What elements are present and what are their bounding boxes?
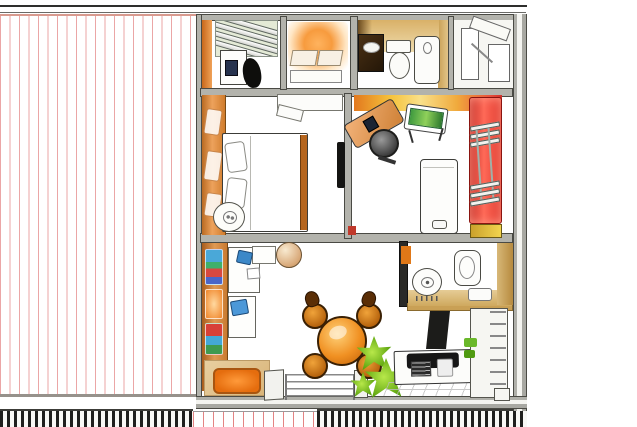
upper-bath-toilet-seat — [389, 52, 410, 79]
vanity-basin — [363, 42, 380, 53]
counter-sink — [437, 359, 453, 377]
tub-inner-oval — [459, 256, 475, 279]
bottom-tick-band-left — [0, 409, 193, 427]
floor-plan-canvas — [0, 0, 637, 427]
cabinet-handle — [432, 220, 447, 229]
wall-closet-bednook — [280, 16, 287, 90]
wall-bedroom-office — [344, 93, 352, 239]
top-border-line-1 — [0, 5, 527, 7]
office-yellow-step — [470, 224, 502, 238]
lower-bath-right-wall — [497, 243, 513, 305]
lower-bath-orange-accent — [401, 246, 411, 264]
upper-bath-shower — [414, 36, 440, 84]
kitchen-dark-column — [426, 311, 450, 349]
living-counter-small — [252, 246, 276, 264]
wall-outer-right — [513, 14, 527, 411]
bottom-tick-band-right — [317, 409, 527, 427]
bednook-pillow-right — [317, 50, 344, 66]
office-cabinet-bed — [420, 159, 458, 234]
flower-table-highlight — [327, 323, 348, 341]
bednook-front-board — [290, 70, 342, 83]
toilet-inner — [421, 277, 434, 288]
bottom-stripe-band-middle — [193, 411, 317, 427]
shelf-green-1 — [464, 338, 477, 347]
wardrobe-slat — [203, 150, 223, 182]
toilet-tassels — [416, 296, 440, 301]
stair-block-left — [461, 28, 479, 80]
closet-orange-wall — [202, 20, 212, 88]
poster-top — [205, 249, 223, 285]
awning-terrace — [0, 14, 196, 397]
easel-leg-left — [408, 130, 414, 143]
poster-bottom — [205, 323, 223, 355]
flower-table-center — [317, 316, 367, 366]
bed-footboard — [300, 135, 307, 230]
side-table-inner — [223, 211, 237, 224]
bednook-pillow-left — [290, 50, 319, 66]
wall-bednook-bath — [350, 16, 358, 90]
shower-knob — [423, 42, 432, 54]
wardrobe-slat — [203, 108, 222, 136]
shelf-foot-block — [494, 388, 510, 401]
wall-midrow-bottom — [200, 233, 513, 243]
lower-bath-tub — [454, 250, 481, 286]
lower-bath-toilet — [412, 268, 442, 296]
door-accent-red — [348, 226, 356, 235]
office-chair — [369, 129, 399, 158]
top-border-line-2 — [0, 12, 526, 13]
bedroom-side-table — [213, 202, 245, 232]
bed-fold-line — [250, 136, 251, 230]
cabinet-top-line — [423, 167, 454, 168]
closet-cabinet-screen — [225, 60, 238, 76]
white-stool — [247, 267, 261, 279]
blue-chair-upper — [236, 250, 253, 266]
upper-bath-vanity-sink — [358, 34, 384, 72]
shelf-green-2 — [464, 350, 475, 358]
easel-canvas-green — [408, 108, 444, 130]
counter-grill — [411, 361, 431, 377]
orange-rug — [213, 368, 261, 394]
soap-dish — [468, 288, 492, 301]
blue-chair-lower — [230, 299, 249, 317]
kitchen-shelf-unit — [470, 308, 508, 398]
paper-lantern-ball — [276, 242, 302, 268]
bed-pillow-top — [224, 141, 248, 173]
poster-middle — [205, 289, 223, 319]
shelf-rungs — [490, 311, 506, 395]
sliding-door-left-post — [264, 369, 284, 400]
bedroom-door-leaf — [337, 142, 345, 188]
